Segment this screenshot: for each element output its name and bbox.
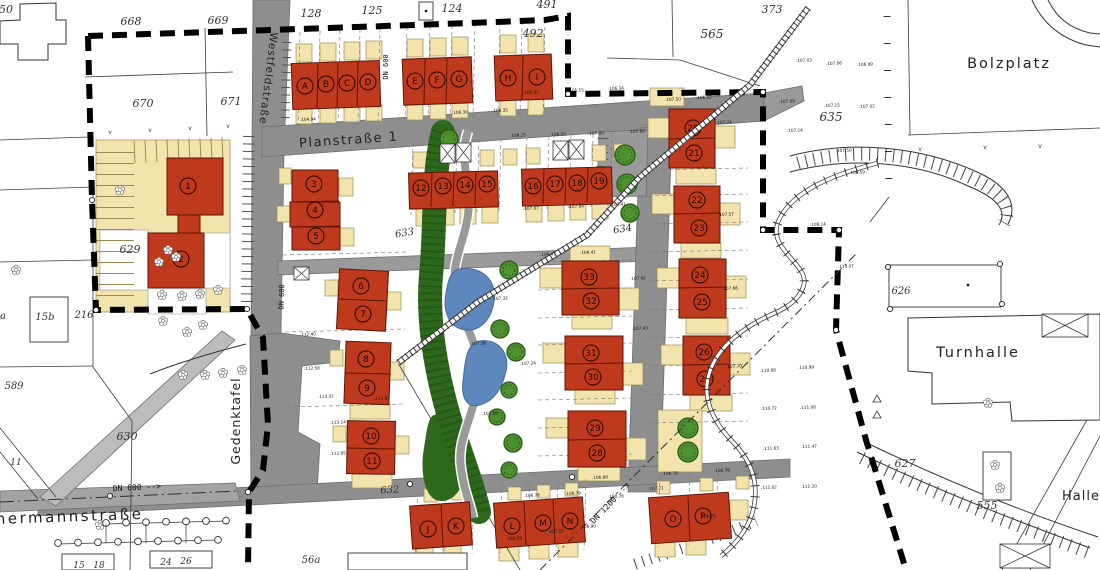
plot (652, 194, 674, 214)
unit-label: J (426, 525, 430, 535)
elevation-label: .112.40 (300, 331, 316, 337)
elevation-label: .107.15 (824, 102, 840, 108)
elevation-label: 107.50 (837, 147, 852, 153)
plot (296, 44, 312, 62)
elevation-label: .107.57 (718, 211, 734, 217)
elevation-label: .107.06 (826, 60, 842, 66)
unit-label: 29 (589, 424, 601, 434)
plot (575, 390, 615, 404)
elevation-label: .106.41 (580, 249, 596, 255)
tree-row-icon (215, 536, 222, 543)
unit-label: 9 (364, 384, 370, 394)
plot (540, 268, 562, 288)
survey-dot (425, 10, 427, 12)
pond (463, 341, 507, 406)
survey-point (93, 307, 98, 312)
road-edge (790, 163, 1002, 225)
elevation-label: .107.07 (548, 528, 564, 534)
plot (623, 363, 643, 385)
elevation-label: .112.58 (304, 365, 320, 371)
unit-label: 5 (313, 232, 319, 242)
elevation-label: .106.34 (608, 85, 624, 91)
elevation-label: .106.59 (849, 169, 865, 175)
elevation-label: .110.99 (798, 364, 814, 370)
elevation-label: .106.75 (700, 513, 716, 519)
unit-label: I (536, 73, 539, 83)
shrub-icon (240, 368, 244, 372)
survey-point (833, 327, 838, 332)
pipe-label: DN 1200 --> (589, 481, 632, 525)
plot (407, 39, 423, 57)
shrub-icon (998, 486, 1002, 490)
parcel-label: 670 (133, 97, 154, 110)
cadastral-line (0, 260, 93, 262)
elevation-label: .106.79 (662, 470, 678, 476)
plot (387, 292, 401, 310)
plot (546, 418, 568, 438)
plot (648, 118, 669, 138)
shrub-icon (166, 248, 170, 252)
cadastral-line (205, 28, 207, 136)
road-edge (1048, 0, 1100, 34)
parcel-label: 11 (10, 458, 21, 468)
cadastral-line (672, 0, 673, 57)
elevation-label: .111.02 (761, 484, 777, 490)
elevation-label: .106.35 (492, 107, 508, 113)
lot-line (473, 24, 475, 120)
plot (700, 478, 713, 491)
plot (528, 99, 544, 115)
elevation-label: .108.76 (608, 493, 624, 499)
parcel-label: a (0, 311, 6, 322)
parcel-label: 633 (394, 227, 415, 241)
elevation-label: .107.43 (632, 325, 648, 331)
plot (676, 168, 716, 184)
unit-label: 19 (593, 177, 605, 187)
elevation-label: .106.90 (580, 523, 596, 529)
outline-building (983, 452, 1011, 500)
unit-label: O (669, 515, 676, 525)
elevation-label: .107.50 (665, 96, 681, 102)
parcel-label: 627 (895, 457, 916, 470)
plot (366, 105, 382, 121)
tree-row-icon (195, 537, 202, 544)
survey-vmark: v (226, 123, 230, 130)
survey-vmark: v (983, 144, 987, 151)
parcel-label: 555 (977, 499, 998, 512)
tree-row-icon (95, 539, 102, 546)
unit-label: 21 (688, 149, 699, 159)
unit-label: 8 (363, 355, 369, 365)
elevation-label: .107.66 (722, 285, 738, 291)
elevation-label: .110.07 (838, 263, 854, 269)
tree-icon (501, 382, 517, 398)
parcel-label: 373 (762, 3, 783, 16)
survey-point (407, 481, 412, 486)
tree-row-icon (55, 540, 62, 547)
elevation-label: .107.42 (630, 275, 646, 281)
unit-label: 15 (481, 180, 492, 190)
unit-label: G (456, 75, 463, 85)
parcel-label: 589 (4, 381, 24, 392)
tree-row-icon (115, 538, 122, 545)
outline-building (62, 554, 114, 570)
unit-label: 4 (312, 206, 318, 216)
parcel-label: 492 (522, 27, 544, 40)
elevation-label: .107.87 (523, 205, 539, 211)
unit-label: 30 (587, 373, 599, 383)
shrub-icon (157, 260, 161, 264)
parcel-label: 26 (179, 557, 192, 567)
parcel-label: 634 (612, 223, 633, 237)
place-label: Gedenktafel (228, 377, 243, 464)
survey-point (997, 261, 1002, 266)
tree-row-icon (203, 518, 210, 525)
plot (500, 35, 516, 53)
parcel-label: 629 (120, 243, 141, 256)
unit-label: 23 (693, 224, 704, 234)
plot (715, 126, 735, 148)
unit-label: 17 (549, 180, 560, 190)
shrub-icon (198, 292, 202, 296)
unit-label: 14 (459, 181, 471, 191)
plot (503, 149, 517, 165)
unit-label: 1 (185, 182, 191, 192)
elevation-label: .110.88 (760, 367, 776, 373)
parcel-label: 15 (73, 561, 85, 570)
cadastral-line (607, 58, 680, 60)
elevation-label: .108.79 (565, 490, 581, 496)
unit-label: 3 (311, 180, 317, 190)
plot (626, 438, 646, 460)
elevation-label: .105.15 (568, 87, 584, 93)
unit-label: L (509, 522, 514, 532)
cadastral-line (908, 0, 910, 135)
elevation-label: .106.47 (540, 251, 556, 257)
survey-vmark: v (1038, 143, 1042, 150)
elevation-label: .106.82 (696, 94, 712, 100)
survey-point (89, 197, 94, 202)
unit-label: 32 (585, 297, 596, 307)
shrub-icon (181, 373, 185, 377)
place-label: hermannstraße (0, 505, 144, 528)
unit-label: A (302, 82, 309, 92)
place-label: Turnhalle (935, 345, 1020, 361)
survey-point (760, 227, 765, 232)
plot (279, 168, 291, 184)
survey-point (245, 489, 250, 494)
survey-dot (967, 284, 969, 286)
street (250, 333, 340, 497)
plot (413, 152, 427, 168)
elevation-label: .113.02 (318, 393, 334, 399)
pipe-label: DN 600 (278, 284, 287, 310)
plot (681, 243, 721, 258)
shrub-icon (993, 463, 997, 467)
elevation-label: .106.76 (714, 467, 730, 473)
shrub-icon (203, 373, 207, 377)
site-plan: ABCDEFGHIJKLMNOP123456789101112131415161… (0, 0, 1100, 570)
survey-point (885, 264, 890, 269)
parcel-label: 632 (380, 485, 400, 497)
elevation-label: .107.80 (588, 130, 604, 136)
parcel-label: 630 (117, 430, 138, 443)
unit-label: 11 (366, 457, 377, 467)
elevation-label: .108.14 (810, 221, 826, 227)
shrub-icon (174, 255, 178, 259)
unit-label: N (567, 517, 574, 527)
survey-vmark: v (918, 146, 922, 153)
cadastral-line (0, 187, 93, 190)
lot-line (283, 252, 408, 255)
elevation-label: .111.08 (800, 404, 816, 410)
cadastral-line (870, 197, 889, 222)
shrub-icon (221, 371, 225, 375)
plot (592, 145, 606, 161)
plot (686, 318, 728, 334)
plot (277, 206, 290, 222)
unit-label: 24 (694, 271, 706, 281)
plot (339, 178, 353, 196)
unit-label: 26 (698, 348, 710, 358)
unit-label: D (365, 78, 372, 88)
elevation-label: .111.85 (374, 395, 390, 401)
elevation-label: .107.32 (492, 295, 508, 301)
tree-icon (501, 462, 517, 478)
survey-point (760, 89, 765, 94)
cadastral-line (0, 366, 93, 367)
plan-canvas[interactable]: ABCDEFGHIJKLMNOP123456789101112131415161… (0, 0, 1100, 570)
plot (480, 150, 494, 166)
plot (325, 280, 338, 296)
plot (350, 404, 390, 419)
elevation-label: .109.29 (506, 535, 522, 541)
plot (482, 205, 498, 223)
plot (543, 343, 565, 363)
plot (572, 315, 612, 329)
shrub-icon (180, 294, 184, 298)
elevation-label: .111.47 (801, 443, 817, 449)
shrub-icon (161, 319, 165, 323)
cadastral-line (93, 367, 132, 421)
plot (390, 362, 404, 380)
cadastral-line (908, 128, 1100, 135)
plot (526, 148, 540, 164)
unit-label: 10 (365, 432, 377, 442)
unit-label: 31 (585, 349, 596, 359)
tree-row-icon (135, 538, 142, 545)
unit-label: E (412, 77, 418, 87)
elevation-label: .107.41 (610, 201, 626, 207)
plot (344, 42, 360, 60)
survey-point (569, 474, 574, 479)
plot (344, 106, 360, 122)
plot (658, 410, 702, 472)
unit-label: 22 (691, 196, 702, 206)
elevation-label: .107.21 (648, 485, 664, 491)
elevation-label: .106.30 (452, 109, 468, 115)
lot-line (499, 138, 501, 211)
plot (736, 476, 749, 489)
shrub-icon (216, 288, 220, 292)
tree-row-icon (155, 538, 162, 545)
parcel-label: 125 (362, 4, 383, 17)
parcel-label: 50 (0, 3, 13, 16)
parcel-label: 15b (35, 312, 54, 323)
tree-row-icon (175, 537, 182, 544)
tree-row-icon (75, 539, 82, 546)
elevation-label: .106.78 (524, 492, 540, 498)
parcel-label: 124 (442, 2, 463, 15)
elevation-label: .113.14 (330, 419, 346, 425)
triangle-symbol (873, 395, 881, 402)
cadastral-line (0, 137, 88, 140)
parcel-label: 216 (73, 310, 94, 321)
parcel-label: 56a (302, 555, 321, 566)
elevation-label: .104.94 (300, 116, 316, 122)
parcel-label: 671 (221, 95, 242, 108)
plot (333, 426, 346, 442)
plot (320, 43, 336, 61)
survey-point (999, 301, 1004, 306)
elevation-label: .105.95 (523, 89, 539, 95)
open-lot (204, 233, 230, 288)
cadastral-line (85, 72, 233, 77)
open-lot (100, 230, 148, 290)
elevation-label: .106.88 (592, 474, 608, 480)
unit-label: 7 (360, 310, 366, 320)
parking-ticks (887, 16, 889, 196)
elevation-label: .107.84 (568, 203, 584, 209)
plot (730, 500, 748, 520)
plot (320, 107, 336, 123)
shrub-icon (986, 401, 990, 405)
plot (340, 228, 354, 246)
elevation-label: .107.70 (726, 363, 742, 369)
street (40, 331, 235, 506)
elevation-label: .107.24 (716, 119, 732, 125)
pipe-label: DN 600 (382, 54, 390, 79)
parcel-label: 635 (820, 110, 843, 124)
unit-label: 12 (415, 184, 426, 194)
unit-label: 13 (437, 182, 448, 192)
tree-row-icon (163, 518, 170, 525)
plot (395, 436, 409, 454)
elevation-label: .107.14 (787, 127, 803, 133)
elevation-label: .107.24 (520, 360, 536, 366)
plot (657, 268, 679, 288)
plot (330, 350, 343, 366)
shrub-icon (160, 293, 164, 297)
parcel-label: 24 (159, 558, 172, 568)
parking-ticks (247, 136, 249, 304)
plot (430, 38, 446, 56)
place-label: Bolzplatz (967, 56, 1051, 72)
unit-label: 18 (571, 179, 583, 189)
parcel-label: 626 (891, 286, 911, 297)
elevation-label: .106.20 (550, 131, 566, 137)
unit-label: 6 (358, 282, 364, 292)
elevation-label: .107.89 (629, 128, 645, 134)
survey-vmark: v (108, 129, 112, 136)
elevation-label: .107.03 (796, 57, 812, 63)
unit-label: M (539, 519, 547, 529)
planned-building (178, 215, 200, 235)
place-label: Haller (1062, 489, 1100, 504)
planned-building (674, 186, 720, 243)
survey-point (887, 306, 892, 311)
planned-building (167, 158, 223, 215)
elevation-label: .111.63 (763, 445, 779, 451)
plot (430, 103, 446, 119)
tree-row-icon (183, 518, 190, 525)
shrub-icon (201, 323, 205, 327)
triangle-symbol (873, 411, 881, 418)
road-edge (1032, 0, 1100, 47)
unit-label: 28 (591, 449, 603, 459)
unit-label: 33 (583, 273, 594, 283)
elevation-label: .110.72 (761, 405, 777, 411)
unit-label: F (434, 76, 439, 86)
plot (619, 288, 639, 310)
unit-label: 16 (527, 182, 539, 192)
elevation-label: .106.99 (857, 61, 873, 67)
elevation-label: .112.85 (330, 450, 346, 456)
parcel-label: 669 (208, 14, 229, 27)
shrub-icon (14, 268, 18, 272)
unit-label: C (344, 79, 350, 89)
plot (452, 37, 468, 55)
plot (407, 104, 423, 120)
unit-label: B (323, 80, 329, 90)
unit-label: 25 (696, 298, 707, 308)
parcel-label: 565 (701, 27, 724, 41)
survey-point (244, 306, 249, 311)
survey-vmark: v (188, 125, 192, 132)
parcel-label: 128 (301, 7, 322, 20)
elevation-label: .106.25 (510, 132, 526, 138)
outline-building (348, 553, 467, 570)
elevation-label: .107.18 (482, 410, 498, 416)
plot (508, 487, 521, 500)
survey-point (107, 493, 112, 498)
elevation-label: .107.38 (470, 340, 486, 346)
survey-vmark: v (148, 127, 152, 134)
unit-label: H (505, 74, 512, 84)
parcel-label: 18 (93, 561, 105, 570)
parcel-label: 668 (121, 15, 142, 28)
parcel-label: 491 (536, 0, 558, 11)
shrub-icon (118, 188, 122, 192)
shrub-icon (185, 330, 189, 334)
elevation-label: .107.02 (859, 103, 875, 109)
elevation-label: .107.09 (779, 98, 795, 104)
survey-point (836, 227, 841, 232)
plot (661, 345, 683, 365)
tree-row-icon (223, 517, 230, 524)
elevation-label: .111.20 (801, 483, 817, 489)
